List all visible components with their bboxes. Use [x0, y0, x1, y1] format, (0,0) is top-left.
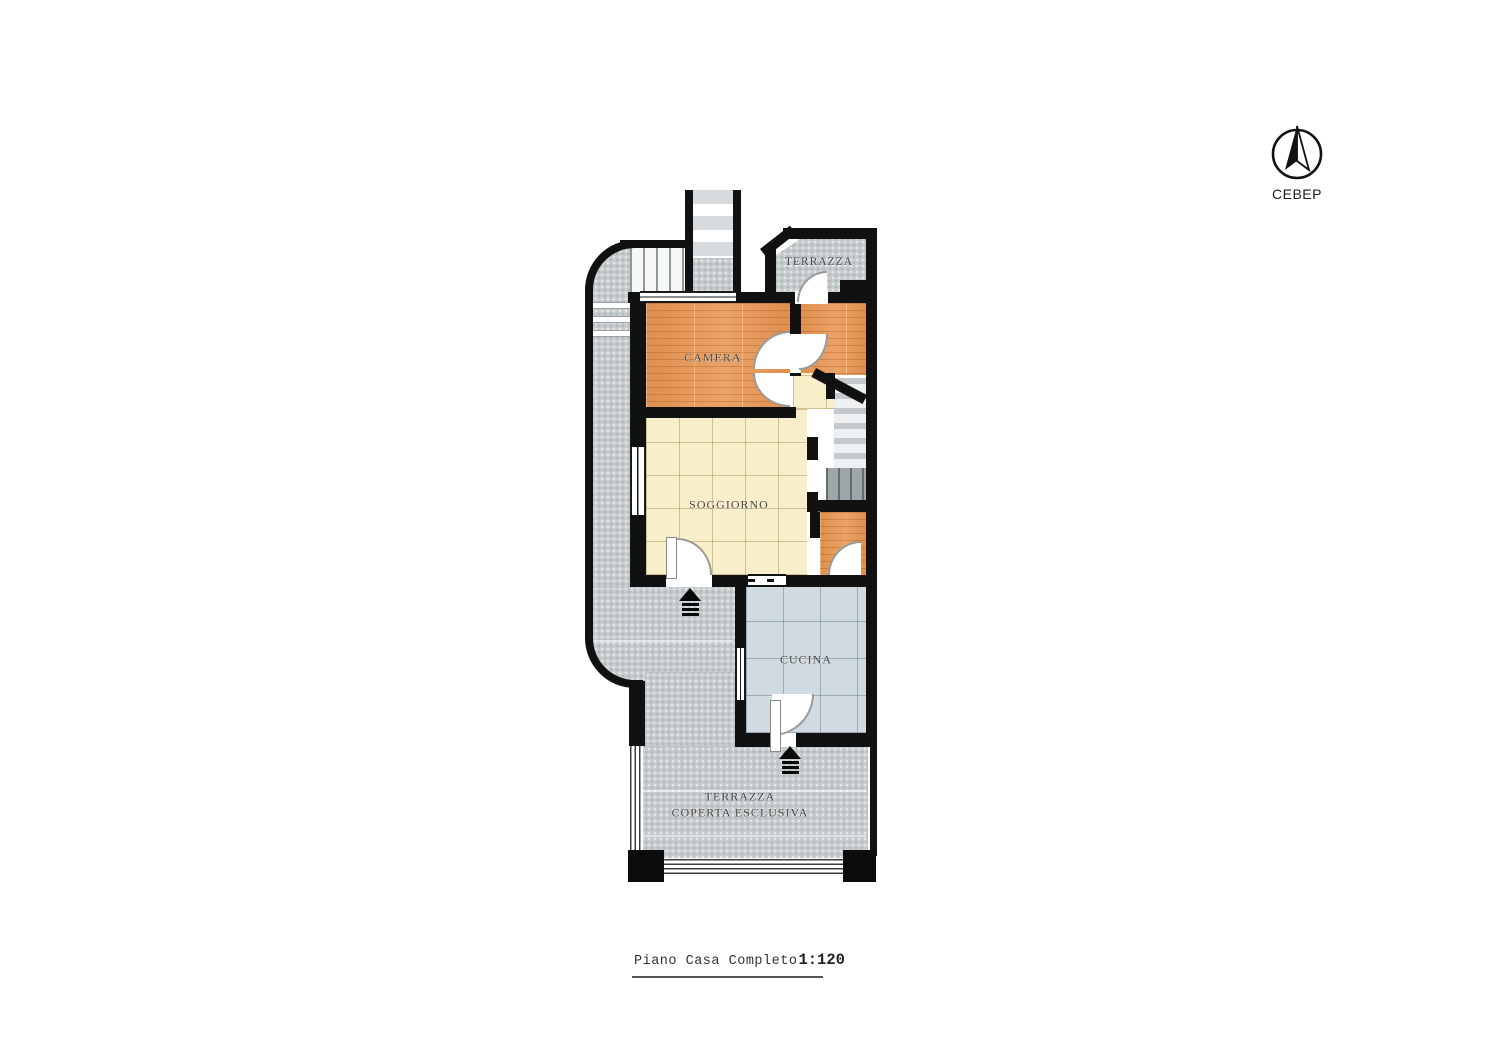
wall-left-outer: [585, 287, 593, 622]
arrow-head: [679, 588, 701, 601]
room-label-terrazza-top: TERRAZZA: [785, 256, 853, 268]
wall-below-stairs: [810, 500, 866, 512]
plan-scale-label: 1:120: [798, 951, 845, 969]
opening-soggiorno-right: [807, 460, 818, 492]
railing-bottom: [663, 858, 845, 874]
window-cucina-left: [735, 648, 746, 700]
wall-cucina-bottom: [735, 733, 877, 747]
wall-terrazza-step-block: [840, 280, 867, 303]
entrance-arrow-icon: [679, 588, 701, 616]
room-label-soggiorno: SOGGIORNO: [689, 498, 769, 513]
arrow-bar: [682, 603, 699, 606]
room-label-terrazza-coperta-line2: COPERTA ESCLUSIVA: [672, 806, 809, 821]
floor-mid-terrace-lower: [645, 672, 735, 746]
internal-stair-lower-flight: [826, 468, 866, 501]
door-leaf-soggiorno: [666, 537, 677, 579]
north-indicator: СЕВЕР: [1260, 123, 1334, 202]
wall-curve-bottom-left: [585, 612, 643, 688]
exterior-staircase-steps: [693, 190, 733, 258]
wall-left-lower: [629, 681, 645, 746]
wall-bottom-terrace-right: [870, 746, 877, 856]
terrace-joint-line: [640, 835, 866, 837]
arrow-head: [779, 746, 801, 759]
terrace-step: [593, 330, 630, 337]
plan-title-text: Piano Casa Completo: [634, 954, 797, 969]
wall-curve-top-left: [585, 240, 640, 295]
north-label: СЕВЕР: [1260, 186, 1334, 202]
railing-left: [630, 746, 643, 852]
wall-camera-bottom: [630, 407, 796, 418]
window-soggiorno-left: [630, 447, 646, 515]
window-soggiorno-cucina: [748, 574, 786, 587]
terrace-step: [593, 302, 630, 309]
wall-building-left: [630, 303, 646, 586]
wall-shaft-right: [733, 190, 741, 292]
arrow-bar: [682, 608, 699, 611]
arrow-bar: [782, 771, 799, 774]
door-leaf-cucina: [770, 700, 781, 752]
terrace-step: [593, 316, 630, 323]
room-label-terrazza-coperta-line1: TERRAZZA: [705, 790, 776, 805]
room-label-cucina: CUCINA: [780, 653, 832, 668]
room-label-camera: CAMERA: [684, 351, 741, 366]
floor-plan-canvas: TERRAZZA CAMERA SOGGIORNO CUCINA TERRAZZ…: [0, 0, 1500, 1060]
window-camera-top: [640, 291, 736, 303]
railing-post-right: [843, 850, 876, 882]
wall-right-outer: [866, 228, 877, 746]
title-underline: [632, 976, 823, 978]
exterior-staircase-landing: [693, 258, 733, 291]
railing-post-left: [628, 850, 664, 882]
entrance-arrow-icon: [779, 746, 801, 774]
north-arrow-icon: [1260, 123, 1334, 181]
door-opening-small-room: [810, 538, 820, 575]
plan-title: Piano Casa Completo 1:120: [634, 951, 845, 969]
arrow-bar: [782, 761, 799, 764]
wall-terrazza-top: [783, 228, 877, 239]
wall-stair-left-upper: [826, 373, 835, 399]
arrow-bar: [682, 613, 699, 616]
arrow-bar: [782, 766, 799, 769]
